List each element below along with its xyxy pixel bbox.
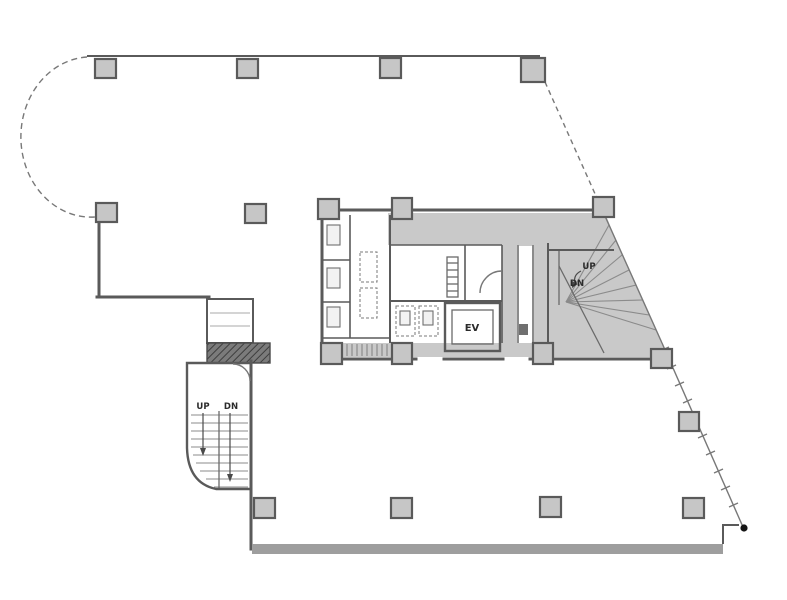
column: [679, 412, 699, 431]
door-swing-arc: [480, 271, 502, 293]
column: [540, 497, 561, 517]
column: [318, 199, 339, 219]
column: [593, 197, 614, 217]
hatched-wall-block: [207, 343, 270, 363]
column: [651, 349, 672, 368]
diagonal-wall-upper: [545, 82, 596, 196]
exterior-dn-arrowhead-icon: [227, 474, 233, 482]
core-stair-dn-label: DN: [570, 279, 584, 289]
service-box: [207, 299, 253, 343]
column: [683, 498, 704, 518]
duct-door-mark: [519, 324, 528, 335]
floor-plan-drawing: EV UP DN UP DN: [0, 0, 787, 600]
column: [391, 498, 412, 518]
column: [321, 343, 342, 364]
column: [392, 198, 412, 219]
core-area: [322, 213, 668, 357]
column: [254, 498, 275, 518]
core-stair-up-label: UP: [582, 262, 595, 272]
curved-corner-wall: [21, 57, 95, 217]
column: [521, 58, 545, 82]
column: [237, 59, 258, 78]
south-east-step: [723, 525, 739, 544]
column: [533, 343, 553, 364]
elevator-label: EV: [465, 323, 480, 334]
floor-plan-page: EV UP DN UP DN: [0, 0, 787, 600]
exterior-stair-door-arc: [233, 364, 250, 381]
column: [380, 58, 401, 78]
exterior-stair: [187, 363, 250, 489]
exterior-stair-dn-label: DN: [224, 402, 238, 412]
column: [392, 343, 412, 364]
exterior-stair-up-label: UP: [196, 402, 209, 412]
south-wall-band: [252, 544, 723, 554]
column: [245, 204, 266, 223]
core-top-corridor: [388, 213, 618, 245]
corner-survey-dot: [740, 524, 747, 531]
column: [96, 203, 117, 222]
column: [95, 59, 116, 78]
ladder-shaft: [447, 257, 458, 297]
